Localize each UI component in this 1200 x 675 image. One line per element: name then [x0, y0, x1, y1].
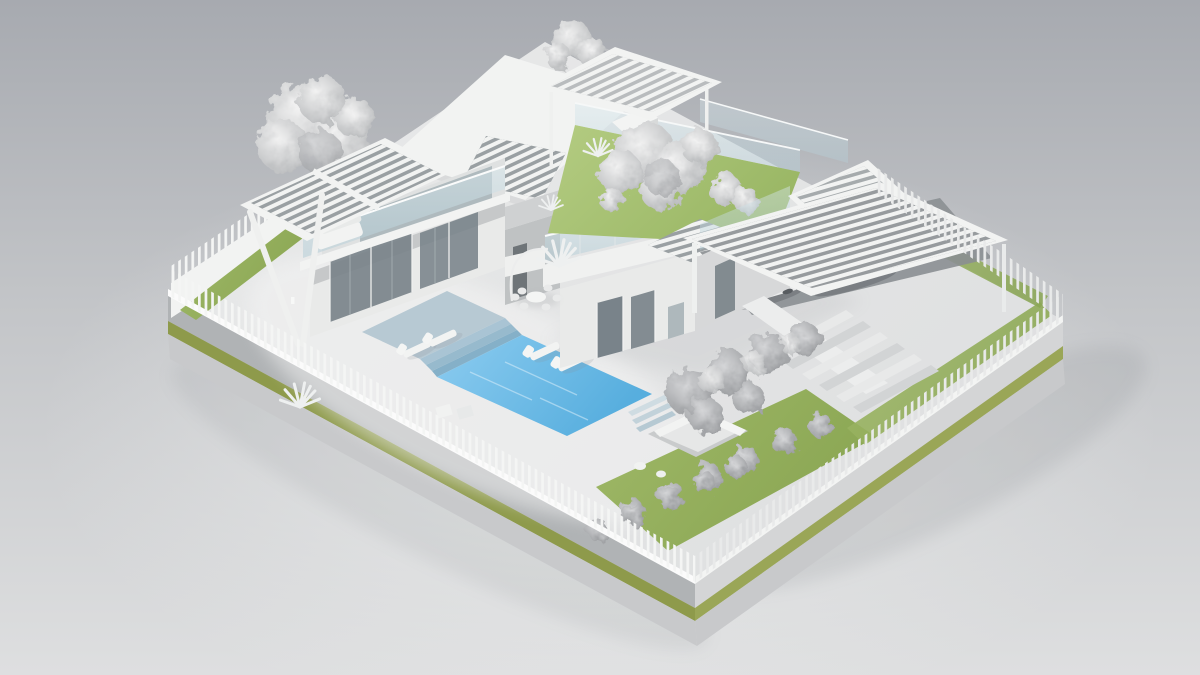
pergola-post [550, 92, 554, 168]
villa-render-stage [0, 0, 1200, 675]
villa-3d-render [0, 0, 1200, 675]
central-window [668, 302, 684, 339]
se-wall-window [715, 257, 735, 319]
dining-table [526, 292, 546, 303]
wall-sconce [291, 297, 295, 304]
pouf [656, 471, 666, 478]
pouf [634, 462, 646, 470]
carport-post [692, 243, 697, 313]
